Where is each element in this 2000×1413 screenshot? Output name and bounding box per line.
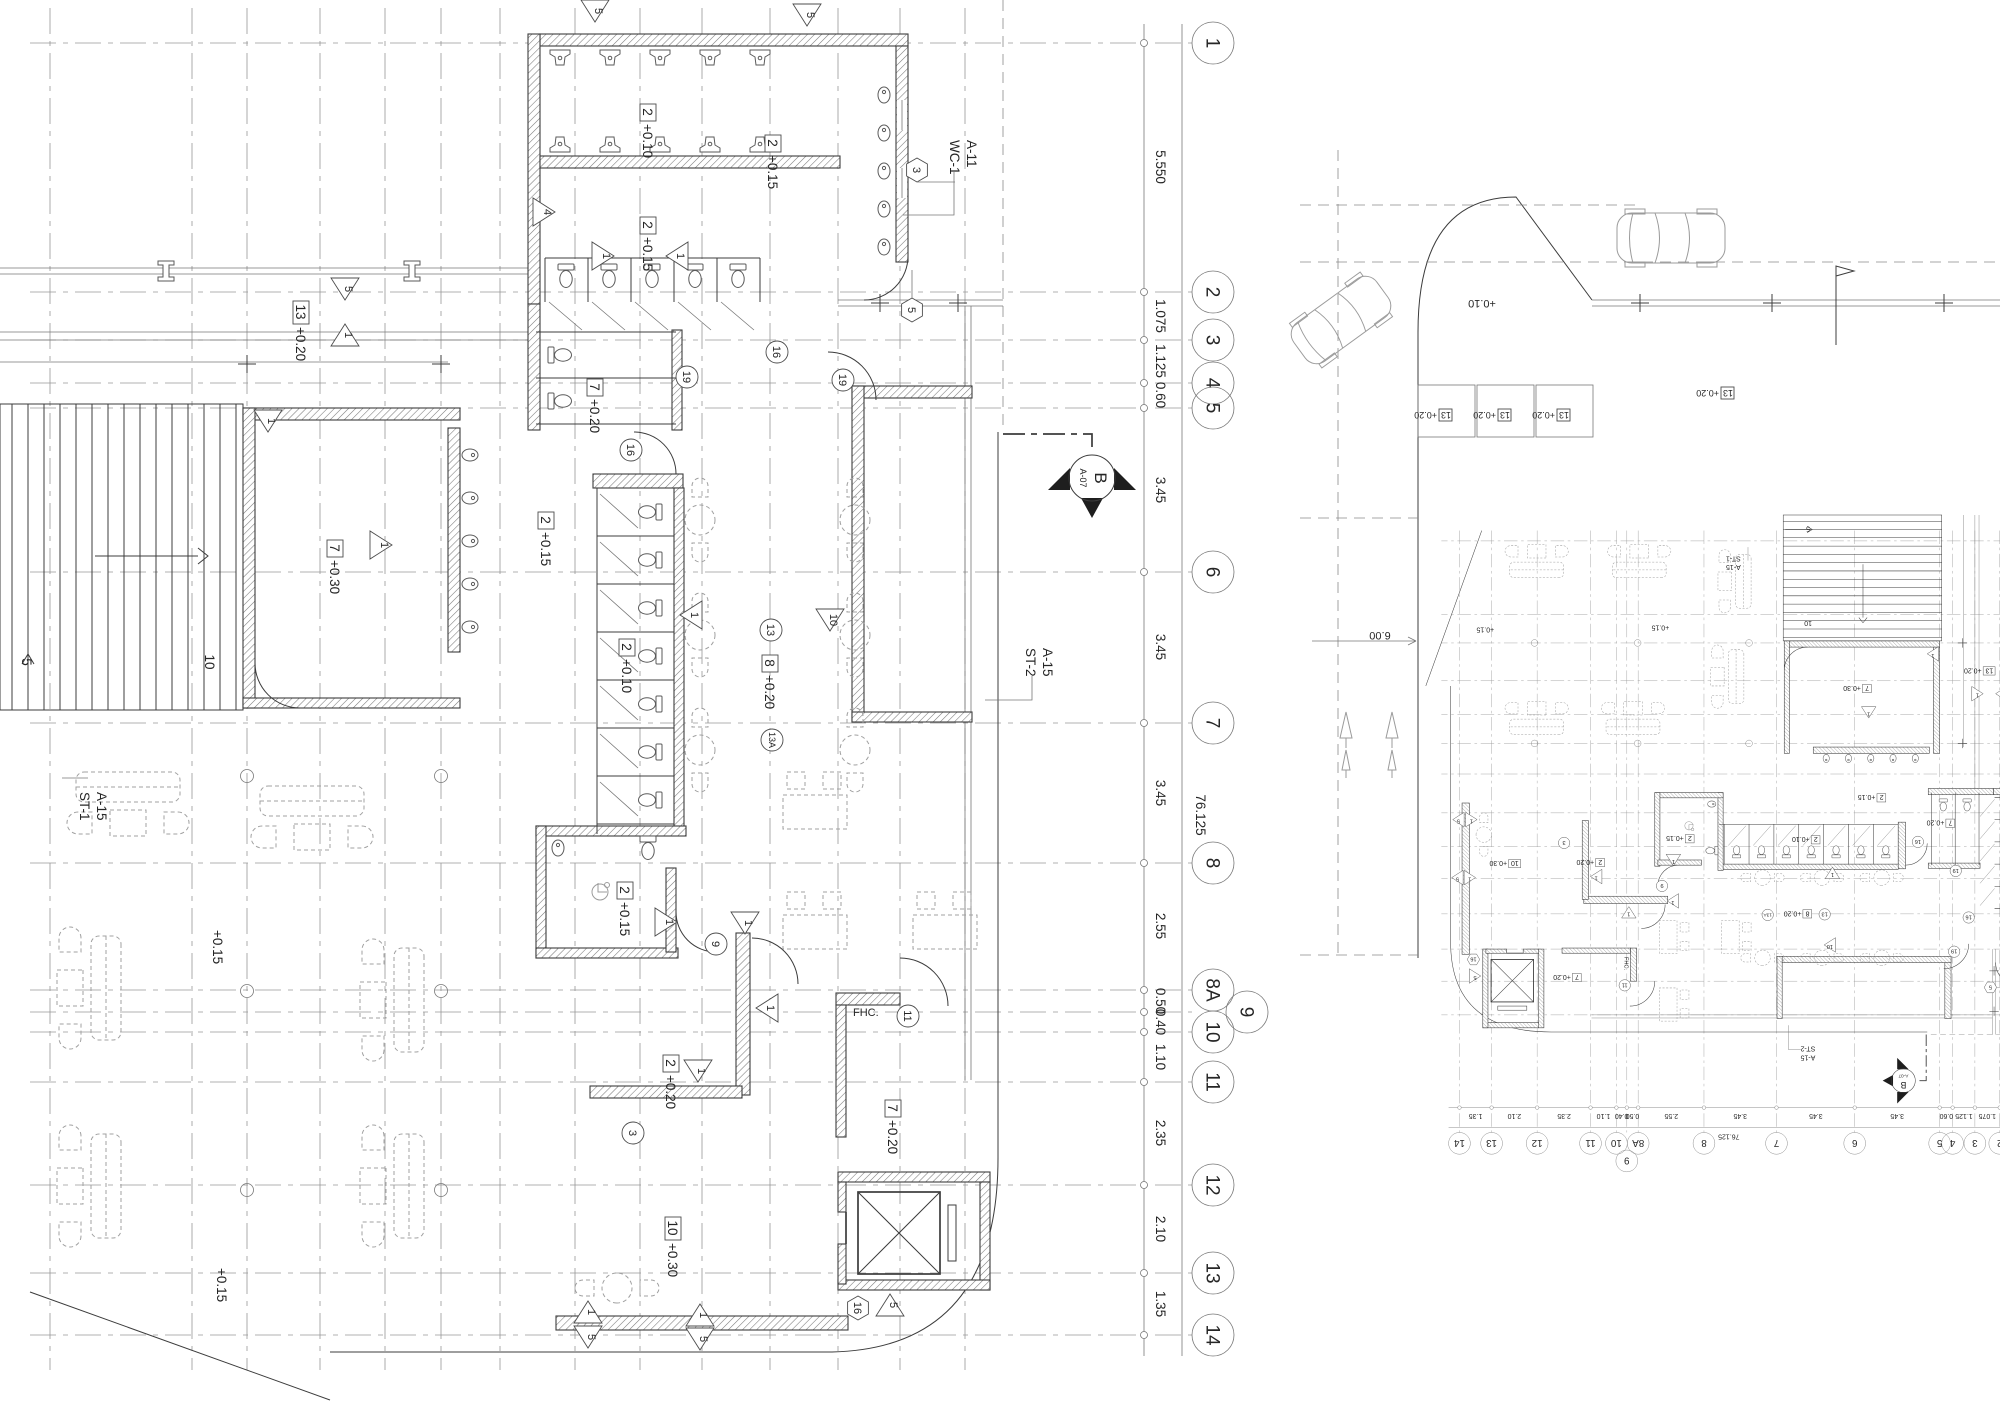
room-level: +0.20: [762, 675, 777, 709]
room-level: +0.10: [619, 659, 634, 693]
left-plan: 5.550 1.075 1.125 0.60 3.45 3.45 3.45 2.…: [0, 0, 1268, 1400]
grid-bubble: 6: [1202, 567, 1223, 578]
walls: [243, 34, 990, 1330]
room-level: +0.30: [327, 560, 342, 594]
svg-text:5: 5: [592, 8, 604, 14]
wc-ref-name: WC-1: [947, 140, 962, 175]
floor-plan-drawing: B A-07 5.550 1.07: [0, 0, 2000, 1413]
svg-text:5: 5: [697, 1336, 709, 1342]
stair-count-label: 10: [202, 654, 217, 669]
grid-bubble: 1: [1202, 38, 1223, 49]
grid-bubble: 7: [1202, 718, 1223, 729]
section-line: [1003, 434, 1092, 452]
grid-bubble: 8: [1202, 858, 1223, 869]
room-tag: 2: [640, 108, 655, 116]
room-tag: 8: [762, 659, 777, 667]
wc-ref-sheet: A-11: [964, 140, 979, 168]
stair-ref-sheet: A-15: [1040, 648, 1055, 677]
svg-text:19: 19: [836, 374, 848, 386]
parking-tag: 13: [1723, 388, 1733, 398]
dimension-label: 3.45: [1153, 634, 1168, 660]
svg-text:16: 16: [770, 346, 782, 358]
area-level-label: +0.15: [214, 1268, 229, 1302]
room-tag: 13: [293, 304, 308, 319]
room-level: +0.20: [885, 1120, 900, 1154]
grid-bubbles: 1 2 3 4 5 6 7 8 8A 9 10 11 12 13 14: [1192, 22, 1268, 1356]
grid-bubble: 5: [1202, 403, 1223, 414]
flag-icon: [1836, 266, 1854, 345]
grid-bubble: 2: [1202, 287, 1223, 298]
grid-bubble: 11: [1202, 1072, 1223, 1092]
dimension-label: 2.10: [1153, 1216, 1168, 1242]
dimension-label: 1.125: [1153, 344, 1168, 378]
svg-text:1: 1: [674, 253, 686, 259]
parking-level: +0.20: [1473, 410, 1496, 420]
room-level: +0.10: [640, 124, 655, 158]
svg-text:4: 4: [541, 209, 553, 215]
right-plan: [1426, 515, 2000, 1172]
grid-bubble: 12: [1202, 1174, 1223, 1195]
grid-bubble: 3: [1202, 335, 1223, 346]
dimension-label: 3.45: [1153, 780, 1168, 806]
svg-text:5: 5: [585, 1334, 597, 1340]
svg-text:3: 3: [626, 1130, 638, 1136]
grid-bubble: 14: [1202, 1324, 1223, 1346]
dimension-label: 2.35: [1153, 1120, 1168, 1146]
svg-text:5: 5: [804, 12, 816, 18]
svg-text:5: 5: [342, 286, 354, 292]
stairs: 5 10: [0, 404, 243, 710]
room-tag: 7: [587, 383, 602, 391]
room-level: +0.15: [617, 902, 632, 936]
dimension-column: 5.550 1.075 1.125 0.60 3.45 3.45 3.45 2.…: [1141, 24, 1209, 1356]
overall-dimension: 76.125: [1193, 794, 1208, 835]
room-tag: 7: [885, 1104, 900, 1112]
parking-level: +0.20: [1532, 410, 1555, 420]
room-level: +0.20: [293, 327, 308, 361]
svg-text:9: 9: [709, 941, 721, 947]
parking-tag: 13: [1500, 410, 1510, 420]
svg-text:1: 1: [764, 1005, 776, 1011]
dimension-label: 5.550: [1153, 150, 1168, 184]
dimension-label: 0.60: [1153, 382, 1168, 408]
room-tag: 7: [327, 544, 342, 552]
svg-text:1: 1: [663, 919, 675, 925]
doors: [255, 256, 948, 1006]
area-level-label: +0.15: [210, 930, 225, 964]
parking-level: +0.20: [1414, 410, 1437, 420]
svg-text:1: 1: [742, 920, 754, 926]
svg-text:16: 16: [851, 1302, 863, 1314]
room-tag: 10: [665, 1220, 680, 1235]
svg-text:13A: 13A: [767, 732, 777, 748]
dimension-label: 0.40: [1153, 1009, 1168, 1035]
svg-text:13: 13: [764, 624, 776, 636]
dimension-label: 3.45: [1153, 477, 1168, 503]
drive-dimension: 6.00: [1369, 629, 1390, 641]
room-tag: 2: [619, 643, 634, 651]
parking-tag: 13: [1559, 410, 1569, 420]
svg-text:16: 16: [624, 444, 636, 456]
right-plan-site: 13+0.20 13+0.20 13+0.20 13+0.20 +0.10 6.…: [1283, 150, 2000, 960]
room-tag: 2: [617, 886, 632, 894]
room-level: +0.30: [665, 1243, 680, 1277]
svg-text:11: 11: [901, 1010, 913, 1021]
stair-ref-name: ST-2: [1023, 648, 1038, 677]
room-level: +0.20: [587, 399, 602, 433]
svg-text:1: 1: [697, 1312, 709, 1318]
room-tag: 2: [663, 1059, 678, 1067]
room-level: +0.15: [640, 237, 655, 271]
svg-text:1: 1: [265, 418, 277, 424]
svg-text:1: 1: [585, 1309, 597, 1315]
svg-text:3: 3: [910, 167, 922, 173]
stair-count-label: 5: [19, 658, 34, 666]
dimension-label: 1.075: [1153, 299, 1168, 333]
room-level: +0.20: [663, 1075, 678, 1109]
svg-text:5: 5: [905, 307, 917, 313]
svg-text:10: 10: [827, 614, 839, 626]
street-level-label: +0.10: [1468, 297, 1496, 309]
grid-bubble: 13: [1202, 1262, 1223, 1283]
dimension-label: 2.55: [1153, 913, 1168, 939]
svg-text:19: 19: [680, 371, 692, 383]
stair-ref-sheet: A-15: [94, 792, 109, 821]
svg-text:1: 1: [688, 612, 700, 618]
room-level: +0.15: [765, 155, 780, 189]
stair-ref-name: ST-1: [77, 792, 92, 821]
circle-tags: 16 19 19 16 9 11 13 13A 3: [620, 341, 919, 1144]
room-tag: 2: [765, 139, 780, 147]
parking-tag: 13: [1441, 410, 1451, 420]
svg-text:1: 1: [378, 542, 390, 548]
room-level: +0.15: [538, 532, 553, 566]
grid-bubble: 8A: [1202, 978, 1223, 1002]
dimension-label: 1.10: [1153, 1044, 1168, 1070]
elevator: [846, 1192, 956, 1274]
grid-bubble: 9: [1236, 1007, 1257, 1018]
parking-level: +0.20: [1696, 388, 1719, 398]
triangle-tags: 5 5 4 5 1 1 1 1 1 10 1 1 1 1 1 1 5 1 5 5: [254, 0, 904, 1350]
svg-text:1: 1: [342, 332, 354, 338]
dimension-label: 1.35: [1153, 1291, 1168, 1317]
svg-text:1: 1: [600, 253, 612, 259]
grid-bubble: 10: [1202, 1021, 1223, 1042]
svg-text:5: 5: [887, 1302, 899, 1308]
svg-text:1: 1: [695, 1068, 707, 1074]
room-tag: 2: [538, 516, 553, 524]
room-tag: 2: [640, 221, 655, 229]
fhc-label: FHC.: [853, 1007, 879, 1019]
hexagon-tags: 3 5 16: [848, 158, 955, 1320]
